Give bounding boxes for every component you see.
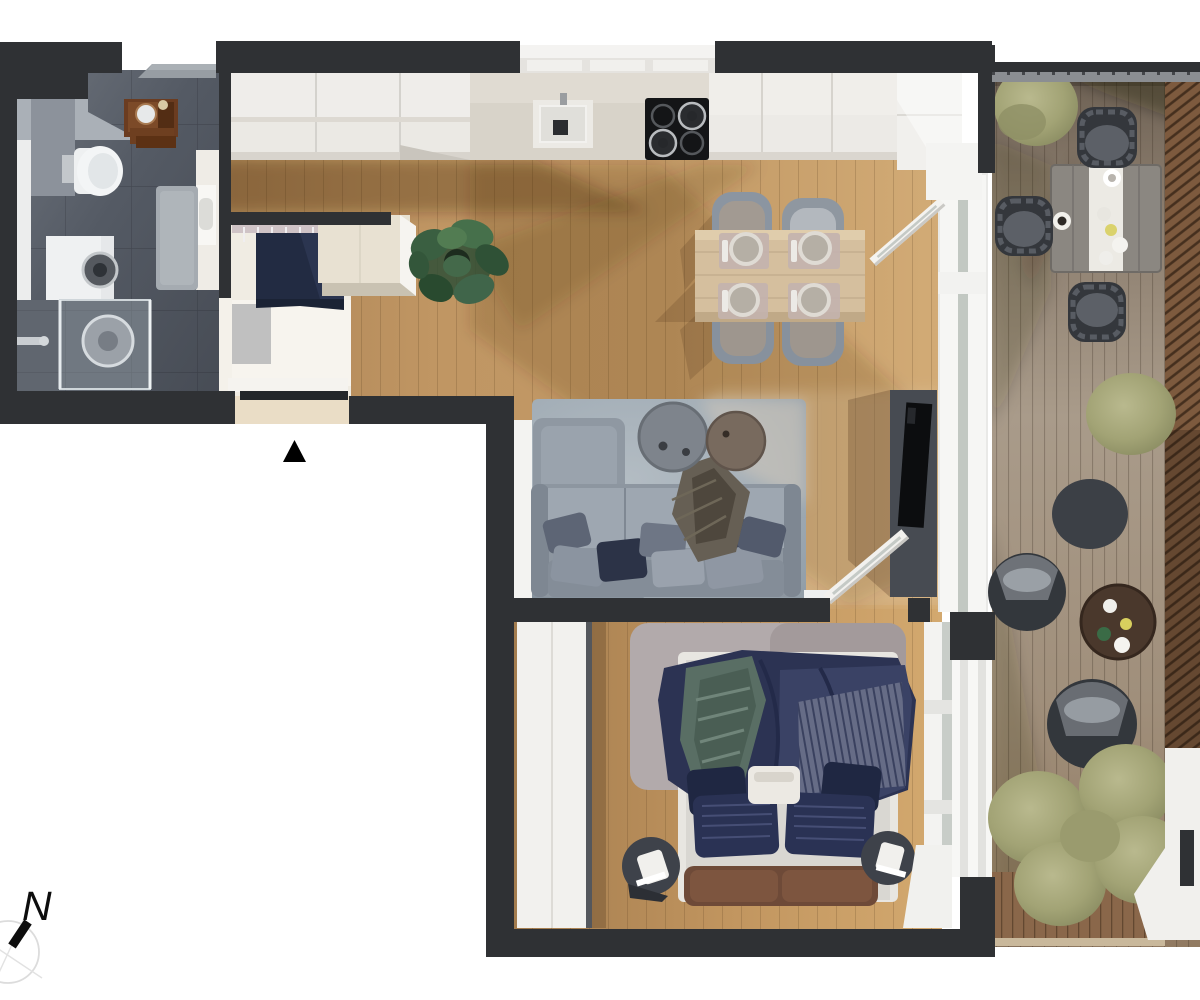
svg-text:N: N [22,883,52,929]
